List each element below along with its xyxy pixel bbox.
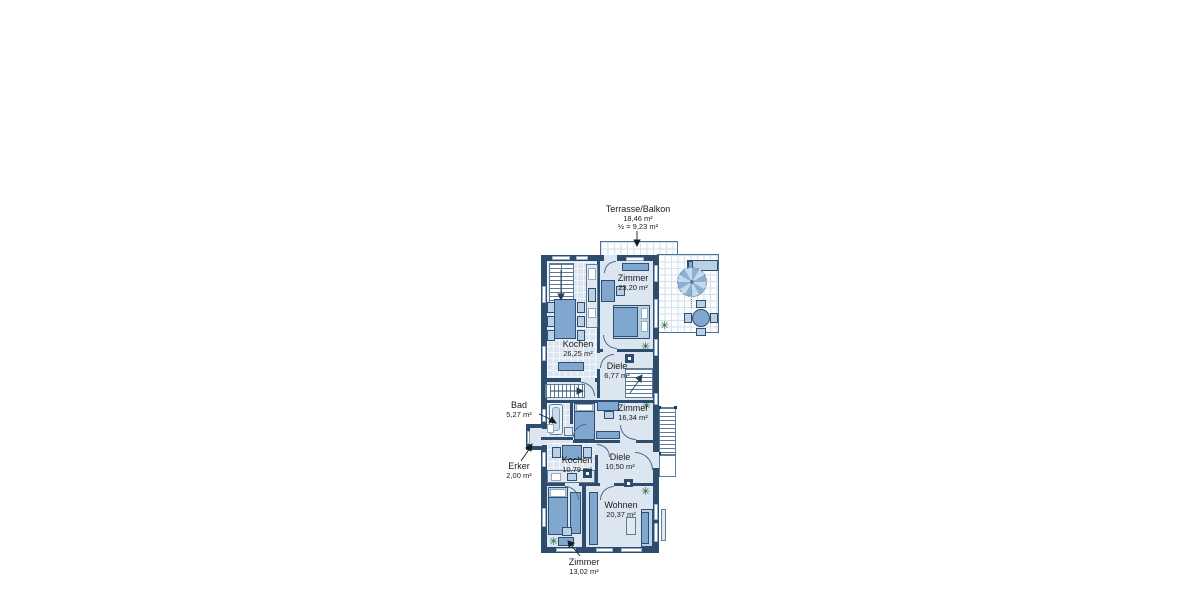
plant-icon: ✳	[641, 341, 650, 352]
label-terrasse-half: ½ = 9,23 m²	[592, 223, 684, 232]
kitchen-stove	[588, 288, 596, 302]
desk-chair	[562, 527, 572, 536]
flower-box	[661, 509, 666, 541]
plant-icon: ✳	[549, 536, 558, 547]
room-zimmer-og: Zimmer 23,20 m²	[603, 274, 663, 292]
terrace-table	[692, 309, 710, 327]
window	[527, 431, 530, 444]
terrace-chair	[696, 328, 706, 336]
kitchen-appliance	[588, 308, 596, 318]
terrace-chair	[710, 313, 718, 323]
floor-plan: ✳ ✳ ✳ ✳ ✳ Terrasse/Balkon 18,46 m² ½ = 9…	[0, 0, 1200, 600]
window	[626, 257, 644, 261]
room-area: 20,37 m²	[591, 511, 651, 520]
room-diele-eg: Diele 10,50 m²	[596, 453, 644, 471]
stair-landing	[659, 455, 676, 477]
window	[654, 504, 658, 520]
window	[596, 548, 613, 552]
plant-icon: ✳	[641, 486, 650, 497]
plant-icon: ✳	[660, 320, 669, 331]
kitchen-stove	[567, 473, 577, 481]
window	[576, 256, 588, 260]
stair-rail	[561, 263, 562, 303]
room-area: 10,50 m²	[596, 463, 644, 472]
kitchen-sink	[588, 268, 596, 280]
window	[542, 508, 546, 527]
terrace-chair	[696, 300, 706, 308]
bed-pillow	[576, 404, 593, 411]
bed-pillow	[550, 489, 566, 497]
kitchen-sink	[551, 473, 561, 481]
wall-segment	[541, 378, 581, 382]
room-area: 13,02 m²	[554, 568, 614, 577]
label-terrasse: Terrasse/Balkon 18,46 m² ½ = 9,23 m²	[592, 205, 684, 232]
parasol-pole	[690, 280, 694, 284]
window	[654, 299, 658, 328]
dining-table	[554, 299, 576, 339]
room-area: 6,77 m²	[593, 372, 641, 381]
terrace-chair	[684, 313, 692, 323]
radiator	[564, 427, 573, 436]
window	[621, 548, 642, 552]
room-area: 23,20 m²	[603, 284, 663, 293]
entrance-gap	[653, 452, 659, 468]
window	[542, 452, 546, 467]
label-zimmer-eg: Zimmer 13,02 m²	[554, 558, 614, 576]
bed-pillow	[641, 321, 648, 332]
staircase-landing-mid	[545, 384, 585, 398]
room-area: 2,00 m²	[497, 472, 541, 481]
wall-segment	[570, 402, 573, 424]
room-diele-og: Diele 6,77 m²	[593, 362, 641, 380]
room-zimmer-mid: Zimmer 16,34 m²	[603, 404, 663, 422]
window	[542, 286, 546, 303]
coffee-table	[626, 517, 636, 535]
chimney	[624, 479, 633, 487]
room-area: 16,34 m²	[603, 414, 663, 423]
label-bad: Bad 5,27 m²	[497, 401, 541, 419]
window	[654, 339, 658, 356]
wall-segment	[541, 437, 573, 440]
room-area: 26,25 m²	[548, 350, 608, 359]
bed-blanket	[613, 307, 638, 337]
toilet	[547, 424, 554, 433]
label-erker: Erker 2,00 m²	[497, 462, 541, 480]
bench	[596, 431, 620, 439]
wall-segment	[573, 440, 620, 443]
chair	[577, 316, 585, 327]
chair	[547, 302, 555, 313]
window	[556, 548, 576, 552]
bed-pillow	[641, 308, 648, 319]
stair-post	[674, 406, 677, 409]
window	[654, 523, 658, 542]
room-wohnen: Wohnen 20,37 m²	[591, 501, 651, 519]
chair	[547, 316, 555, 327]
sideboard	[558, 362, 584, 371]
room-area: 5,27 m²	[497, 411, 541, 420]
wall-segment	[582, 483, 586, 547]
sideboard	[622, 263, 649, 271]
window	[542, 346, 546, 361]
parasol-guide	[691, 290, 692, 308]
wall-segment	[636, 440, 653, 443]
window	[552, 256, 570, 260]
wall-segment	[541, 483, 565, 486]
desk	[558, 537, 574, 546]
window	[542, 409, 546, 422]
chair	[577, 302, 585, 313]
room-kochen-og: Kochen 26,25 m²	[548, 340, 608, 358]
